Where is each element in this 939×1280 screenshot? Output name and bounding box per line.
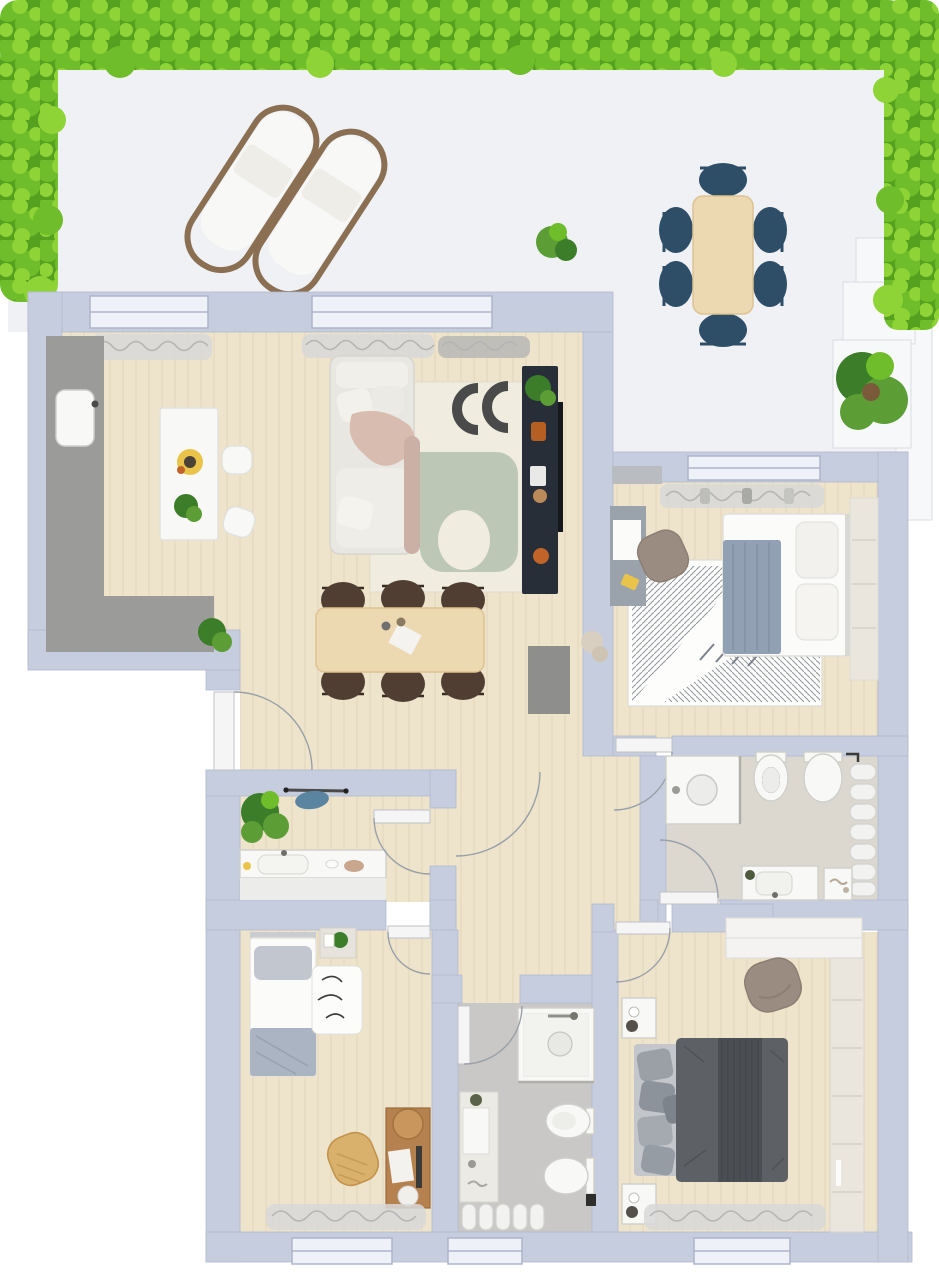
kitchen-sink [56, 390, 94, 446]
decor-candle [531, 422, 546, 441]
vanity [742, 866, 852, 900]
sideboard-cabinet [528, 646, 570, 714]
vanity-column [460, 1092, 498, 1202]
washbasin-cabinet [240, 850, 386, 900]
bidet [546, 1104, 594, 1138]
curtains [660, 484, 824, 508]
faucet [92, 401, 99, 408]
pillow [796, 522, 838, 578]
wall [592, 904, 614, 932]
stool [393, 1109, 423, 1139]
window [292, 1238, 392, 1264]
dining-set [316, 580, 485, 702]
master-bed [634, 1038, 788, 1182]
bed-blanket [723, 540, 781, 654]
flush-control [586, 1194, 596, 1206]
sofa [330, 356, 420, 554]
wall [430, 770, 456, 808]
wall [206, 670, 240, 690]
curtains [266, 1204, 426, 1230]
curtains [92, 334, 530, 360]
hanging-clothes [742, 488, 752, 504]
wall-shelf [612, 466, 662, 484]
wall [583, 332, 613, 756]
window [312, 296, 492, 328]
side-cabinet [824, 868, 852, 900]
wardrobe [850, 498, 878, 680]
window [90, 296, 208, 328]
wall [206, 900, 386, 930]
hanging-clothes [700, 488, 710, 504]
pillow [796, 584, 838, 640]
wall [432, 975, 462, 1003]
decor-frame [530, 466, 546, 486]
window [688, 456, 820, 480]
double-bed [723, 514, 854, 656]
nightstand [622, 998, 656, 1038]
picture-frame [324, 934, 334, 947]
outdoor-table [693, 196, 753, 314]
flower-vase [177, 449, 203, 475]
squiggle-rug [312, 966, 362, 1034]
floor-plan-canvas: Top-down 3D floor plan of an apartment w… [0, 0, 939, 1280]
hanging-clothes [784, 488, 794, 504]
wall [592, 930, 618, 1232]
sofa-pillow [372, 386, 404, 414]
kids-desk [386, 1108, 430, 1208]
wall [878, 452, 908, 1262]
floor-plan-svg: Top-down 3D floor plan of an apartment w… [0, 0, 939, 1280]
built-in-wardrobe [830, 958, 864, 1232]
bar-stool [222, 446, 252, 474]
nightstand [320, 928, 356, 958]
shower [518, 1008, 594, 1082]
wall [430, 900, 456, 930]
desk-papers [613, 520, 641, 560]
hedge-top [0, 0, 906, 78]
desk-bowl [398, 1186, 418, 1206]
pillow [254, 946, 312, 980]
desk-paper [388, 1149, 414, 1184]
wardrobe-handle [836, 1160, 841, 1186]
hedge-left [0, 40, 66, 308]
wall [206, 770, 240, 1262]
desk-tablet [416, 1146, 422, 1188]
tv-sideboard [522, 366, 563, 594]
single-bed [250, 932, 316, 1076]
decor-bowl [533, 548, 549, 564]
wall [672, 736, 908, 756]
decor-plant [540, 390, 556, 406]
window [448, 1238, 522, 1264]
towel-radiator [462, 1204, 544, 1230]
washbasin [463, 1108, 489, 1154]
tv [558, 402, 563, 532]
decor-bowl [533, 489, 547, 503]
bidet [754, 752, 788, 801]
throw-drape [404, 436, 420, 554]
window [694, 1238, 790, 1264]
shower [666, 756, 740, 824]
curtains [644, 1204, 826, 1230]
